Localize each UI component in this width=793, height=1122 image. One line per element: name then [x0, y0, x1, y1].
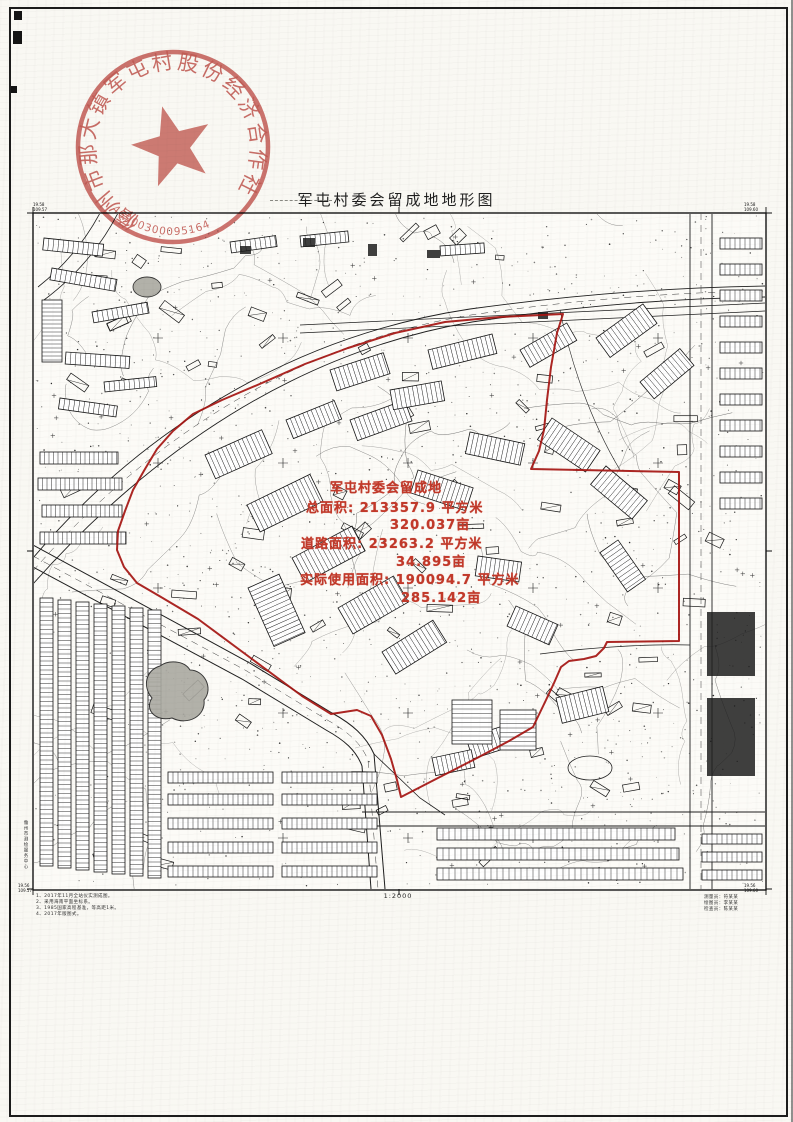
scanned-sheet: 军屯村委会留成地地形图 儋州市那大镇军屯村股份经济合作社469003000951… — [0, 0, 793, 1122]
scan-mark — [11, 86, 17, 93]
sheet-border — [9, 7, 788, 1117]
scan-mark — [14, 11, 22, 20]
scan-mark — [13, 31, 22, 44]
